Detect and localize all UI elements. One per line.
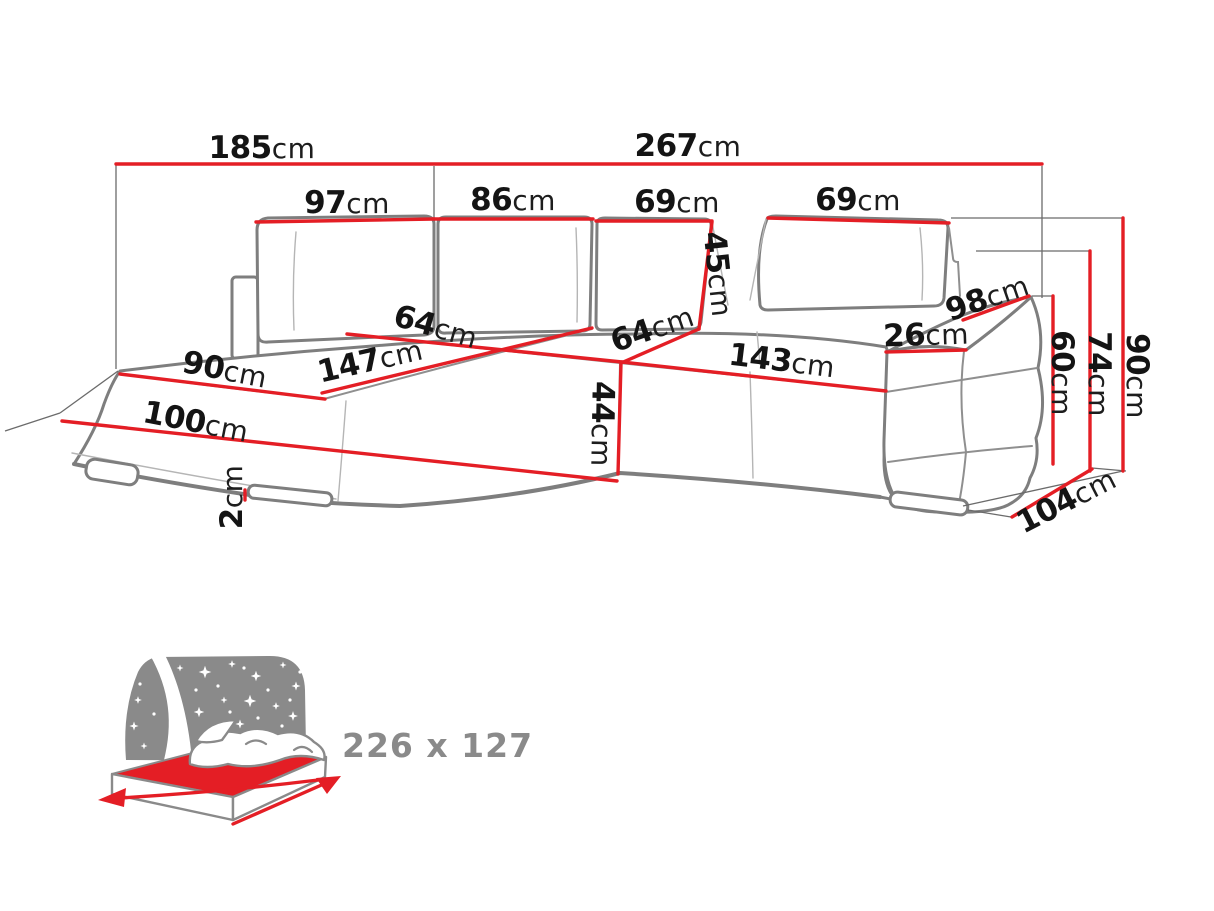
backrest-right-step [949, 228, 960, 296]
dim-label-back-1: 97cm [304, 185, 390, 221]
sofa-back-frame [232, 277, 258, 359]
dim-label-left-span: 185cm [209, 130, 316, 166]
dim-label-armrest-height: 60cm [1044, 330, 1080, 416]
dim-label-back-2: 86cm [470, 182, 556, 218]
guide-chaise-corner-b [5, 413, 60, 431]
dim-label-back-4: 69cm [815, 182, 901, 218]
diagram-canvas: 185cm 267cm 97cm 86cm 69cm 69cm 45cm 64c… [0, 0, 1214, 911]
dim-label-seat-front-height: 44cm [583, 381, 620, 467]
sleeping-function-bed-icon: 226 x 127 [98, 655, 533, 824]
dim-label-backrest-height: 74cm [1081, 331, 1117, 417]
dim-label-leg-height: 2cm [214, 465, 250, 530]
dim-label-total-width: 267cm [635, 128, 742, 164]
backrest-cushion-2 [438, 217, 592, 333]
sofa-dimension-diagram: 185cm 267cm 97cm 86cm 69cm 69cm 45cm 64c… [0, 0, 1214, 911]
dim-label-back-3: 69cm [634, 184, 720, 220]
bed-size-label: 226 x 127 [342, 726, 533, 765]
dim-label-total-height: 90cm [1119, 333, 1155, 419]
